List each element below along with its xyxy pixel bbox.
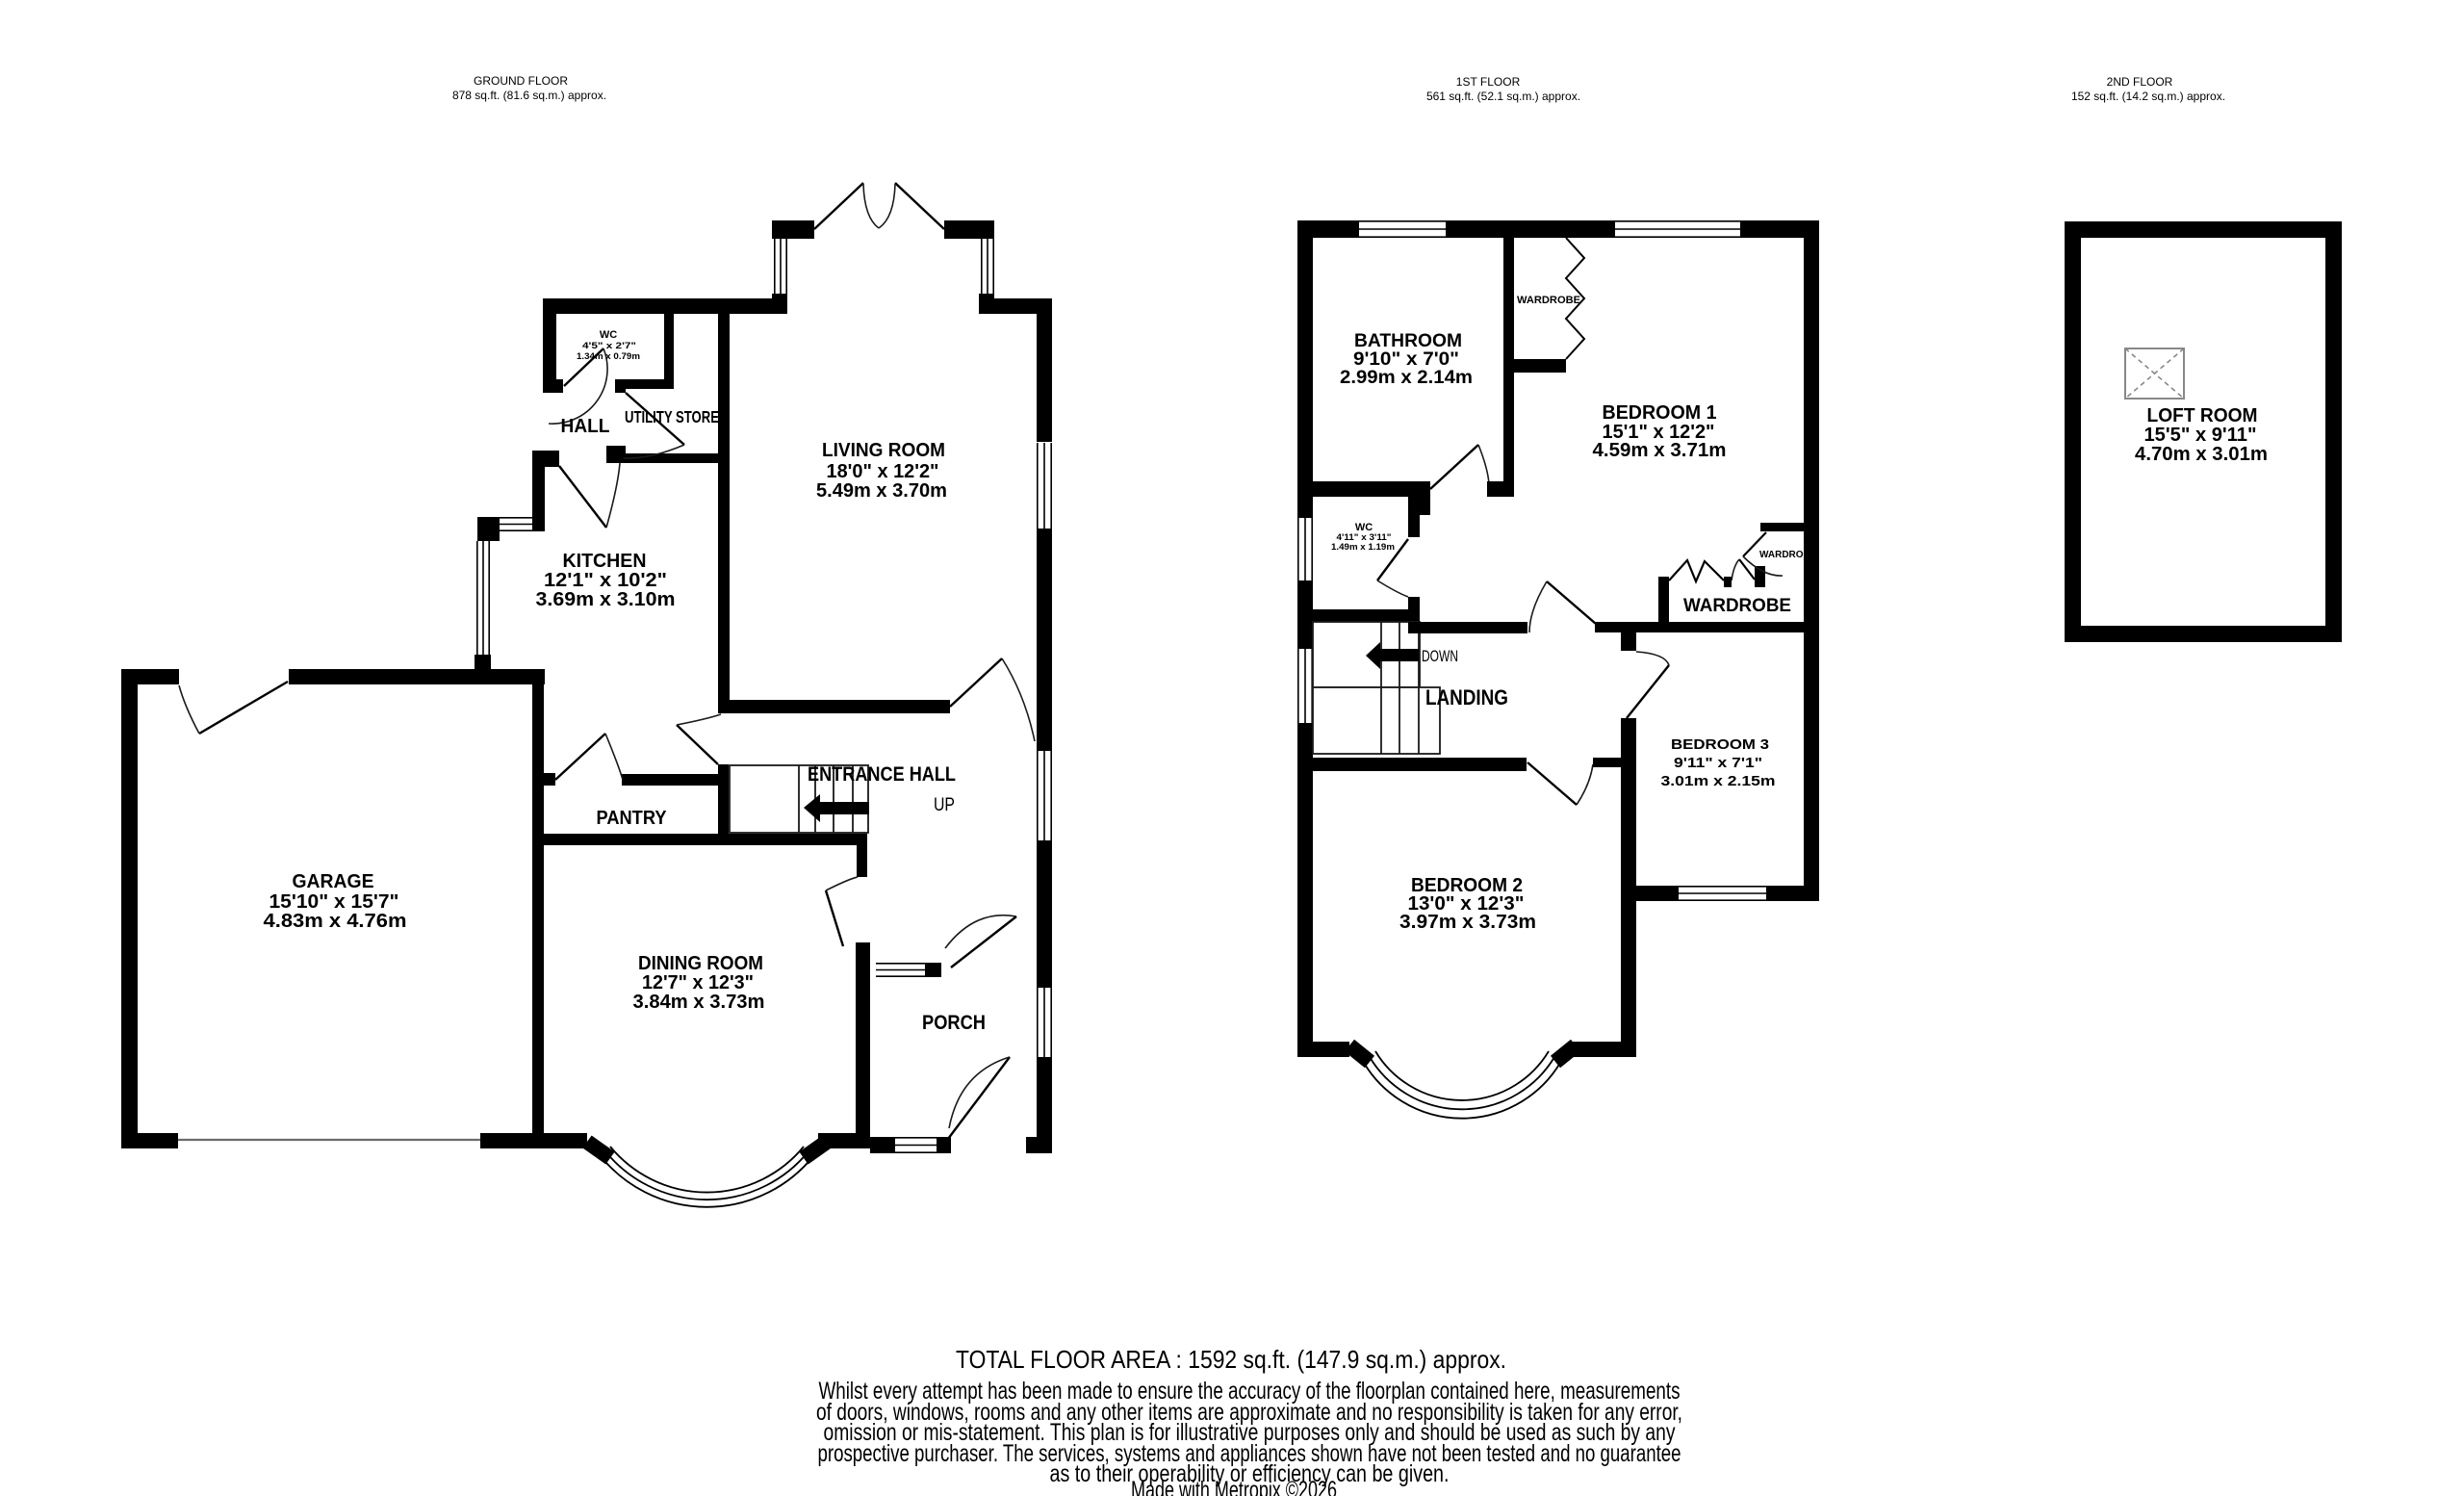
svg-text:WARDROBE: WARDROBE (1517, 295, 1580, 306)
svg-text:3.84m x 3.73m: 3.84m x 3.73m (633, 992, 765, 1013)
svg-text:9'10" x 7'0": 9'10" x 7'0" (1353, 349, 1459, 370)
svg-text:3.97m x 3.73m: 3.97m x 3.73m (1399, 912, 1536, 933)
svg-text:PORCH: PORCH (922, 1012, 986, 1034)
svg-text:UTILITY STORE: UTILITY STORE (625, 407, 719, 426)
svg-text:3.69m x 3.10m: 3.69m x 3.10m (536, 589, 676, 610)
svg-text:4.59m x 3.71m: 4.59m x 3.71m (1593, 440, 1727, 461)
svg-text:12'7" x 12'3": 12'7" x 12'3" (642, 972, 754, 993)
svg-text:4'5" x 2'7": 4'5" x 2'7" (582, 341, 636, 351)
svg-text:DOWN: DOWN (1422, 647, 1458, 665)
svg-text:BEDROOM 1: BEDROOM 1 (1603, 402, 1717, 424)
svg-text:ENTRANCE HALL: ENTRANCE HALL (808, 763, 956, 786)
svg-text:LOFT ROOM: LOFT ROOM (2147, 405, 2258, 426)
svg-text:4.70m x 3.01m: 4.70m x 3.01m (2135, 444, 2268, 465)
svg-text:HALL: HALL (561, 416, 610, 437)
svg-text:DINING ROOM: DINING ROOM (638, 953, 763, 974)
svg-text:152 sq.ft. (14.2 sq.m.) approx: 152 sq.ft. (14.2 sq.m.) approx. (2071, 90, 2225, 103)
svg-text:LIVING ROOM: LIVING ROOM (822, 440, 945, 461)
svg-text:PANTRY: PANTRY (597, 808, 668, 829)
svg-text:9'11" x 7'1": 9'11" x 7'1" (1674, 755, 1762, 771)
svg-text:15'5" x 9'11": 15'5" x 9'11" (2144, 425, 2257, 446)
svg-text:12'1" x 10'2": 12'1" x 10'2" (544, 570, 667, 591)
svg-text:Made with Metropix ©2026: Made with Metropix ©2026 (1131, 1477, 1337, 1496)
svg-text:BEDROOM 3: BEDROOM 3 (1671, 736, 1769, 753)
svg-text:BATHROOM: BATHROOM (1354, 331, 1462, 351)
svg-text:18'0" x 12'2": 18'0" x 12'2" (827, 461, 939, 482)
svg-text:2ND FLOOR: 2ND FLOOR (2107, 75, 2173, 89)
svg-text:WARDROBE: WARDROBE (1759, 550, 1817, 560)
svg-text:1.34m x 0.79m: 1.34m x 0.79m (577, 351, 640, 362)
svg-text:5.49m x 3.70m: 5.49m x 3.70m (816, 480, 947, 502)
svg-text:UP: UP (934, 795, 955, 815)
svg-text:GARAGE: GARAGE (293, 871, 374, 892)
svg-text:TOTAL FLOOR AREA : 1592 sq.ft.: TOTAL FLOOR AREA : 1592 sq.ft. (147.9 sq… (956, 1345, 1506, 1374)
svg-text:878 sq.ft. (81.6 sq.m.) approx: 878 sq.ft. (81.6 sq.m.) approx. (452, 89, 606, 102)
svg-text:GROUND FLOOR: GROUND FLOOR (474, 74, 568, 88)
svg-text:WARDROBE: WARDROBE (1683, 596, 1791, 616)
svg-text:WC: WC (600, 329, 617, 341)
svg-text:LANDING: LANDING (1425, 685, 1508, 709)
svg-text:561 sq.ft. (52.1 sq.m.) approx: 561 sq.ft. (52.1 sq.m.) approx. (1426, 90, 1580, 103)
svg-text:3.01m x 2.15m: 3.01m x 2.15m (1661, 773, 1776, 789)
svg-text:KITCHEN: KITCHEN (563, 551, 647, 572)
svg-text:1.49m x 1.19m: 1.49m x 1.19m (1331, 542, 1395, 553)
svg-text:15'10" x 15'7": 15'10" x 15'7" (269, 891, 399, 913)
svg-text:2.99m x 2.14m: 2.99m x 2.14m (1340, 368, 1473, 388)
svg-text:4.83m x 4.76m: 4.83m x 4.76m (264, 911, 407, 932)
svg-text:1ST FLOOR: 1ST FLOOR (1456, 75, 1521, 89)
